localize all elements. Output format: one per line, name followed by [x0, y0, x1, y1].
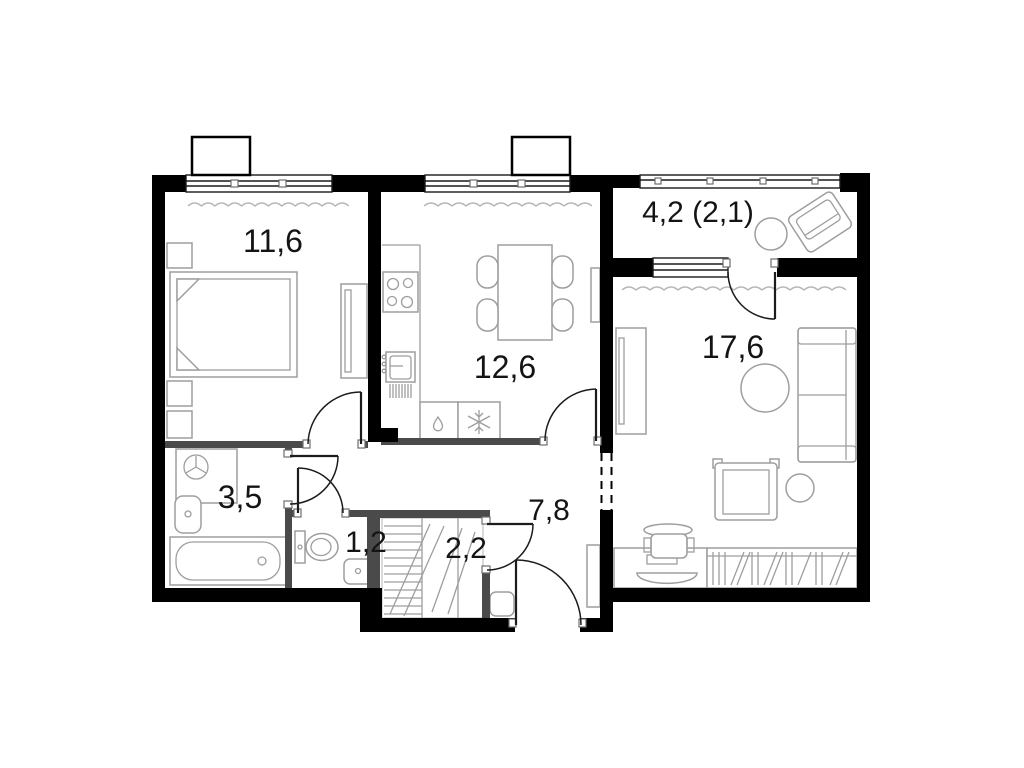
living-wardrobe: [707, 548, 857, 588]
dining-table: [498, 245, 552, 340]
bathroom-sink: [175, 496, 201, 533]
left-wall: [152, 175, 165, 602]
hallway-area-label: 7,8: [528, 494, 570, 527]
bedroom-window: [186, 175, 332, 192]
dining-chair: [477, 299, 498, 331]
kitchen-hall-wall: [381, 438, 545, 445]
dishwasher: [420, 402, 458, 442]
closet-wall: [375, 510, 490, 518]
entry-bottom-wall: [382, 618, 515, 632]
living-cabinet: [616, 328, 646, 434]
dining-chair: [477, 256, 498, 288]
stove: [383, 272, 418, 312]
bottom-wall: [152, 588, 370, 602]
bathroom-area-label: 3,5: [218, 479, 262, 515]
ac-basket: [192, 137, 250, 175]
side-table: [786, 474, 814, 502]
living-room-area-label: 17,6: [702, 329, 764, 365]
top-wall: [332, 175, 425, 192]
hall-console: [587, 545, 600, 607]
kitchen-living-wall: [600, 192, 613, 453]
nightstand: [167, 243, 192, 268]
bathtub: [170, 537, 290, 585]
balcony-wall: [613, 175, 640, 188]
closet-wall: [482, 569, 490, 618]
dining-chair: [552, 256, 573, 288]
dining-chair: [552, 299, 573, 331]
nightstand: [167, 381, 192, 406]
kitchen-window: [425, 175, 570, 192]
dresser: [167, 411, 192, 438]
sofa: [798, 328, 856, 462]
bedroom-hall-wall: [165, 441, 308, 448]
balcony-living-wall: [613, 258, 653, 277]
bedroom-area-label: 11,6: [243, 223, 303, 259]
floor-plan-page: 11,6 12,6 4,2 (2,1) 17,6 3,5 1,2 2,2 7,8: [0, 0, 1024, 768]
balcony-table: [755, 218, 787, 250]
coffee-table: [741, 364, 789, 412]
bottom-step-wall: [360, 588, 382, 632]
ac-basket: [512, 137, 570, 175]
closet-area-label: 2,2: [445, 532, 487, 565]
bathroom-wc-wall: [285, 503, 292, 588]
bedroom-kitchen-wall: [368, 192, 381, 442]
balcony-area-label: 4,2 (2,1): [642, 196, 754, 229]
living-armchair: [713, 459, 779, 520]
wall-panel: [591, 268, 600, 322]
living-bottom-wall: [613, 588, 870, 602]
top-wall: [152, 175, 186, 192]
kitchen-area-label: 12,6: [474, 349, 536, 385]
toilet-area-label: 1,2: [345, 526, 387, 559]
wall-stub: [368, 428, 398, 442]
top-wall: [570, 175, 613, 192]
toilet: [295, 531, 338, 563]
balcony-living-wall: [777, 258, 857, 277]
pouf: [490, 592, 514, 616]
floor-plan-drawing: 11,6 12,6 4,2 (2,1) 17,6 3,5 1,2 2,2 7,8: [0, 0, 1024, 768]
right-wall: [857, 175, 870, 602]
balcony-living-window: [653, 258, 728, 277]
balcony-glazing: [640, 175, 840, 188]
hall-living-wall: [600, 510, 613, 632]
